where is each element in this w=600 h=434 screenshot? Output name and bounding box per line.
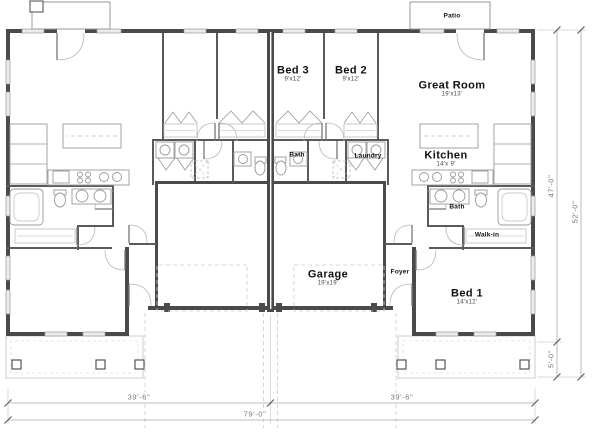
- room-label-walk-in: Walk-in: [475, 231, 499, 238]
- laundry-name: Laundry: [354, 152, 381, 159]
- room-label-laundry: Laundry: [354, 152, 381, 159]
- bed2-dims: 9'x12': [335, 77, 367, 84]
- dim-right-total: 52'-0": [571, 199, 580, 226]
- garage-name: Garage: [308, 269, 348, 281]
- hall-bath-name: Bath: [289, 151, 304, 158]
- dwelling-unit-left: [6, 29, 273, 429]
- dim-bottom-left: 39'-6": [126, 393, 153, 402]
- room-label-garage: Garage 19'x19': [308, 269, 348, 288]
- room-label-bed3: Bed 3 9'x12': [277, 65, 309, 84]
- patio-label-text: Patio: [444, 12, 461, 19]
- room-label-great-room: Great Room 19'x13': [419, 80, 486, 99]
- garage-dims: 19'x19': [308, 281, 348, 288]
- room-label-kitchen: Kitchen 14'x 9': [424, 150, 467, 169]
- kitchen-dims: 14'x 9': [424, 162, 467, 169]
- room-label-bed2: Bed 2 9'x12': [335, 65, 367, 84]
- room-label-hall-bath: Bath: [289, 151, 304, 158]
- bed3-name: Bed 3: [277, 65, 309, 77]
- shared-structure: [30, 1, 490, 312]
- dim-right-upper: 47'-0": [547, 173, 556, 200]
- bed1-dims: 14'x12': [451, 300, 483, 307]
- dim-bottom-total: 79'-0": [242, 410, 269, 419]
- dim-right-lower: 5'-0": [547, 348, 556, 370]
- foyer-name: Foyer: [391, 268, 410, 275]
- bed3-dims: 9'x12': [277, 77, 309, 84]
- bed2-name: Bed 2: [335, 65, 367, 77]
- room-label-foyer: Foyer: [391, 268, 410, 275]
- dwelling-unit-right: [268, 29, 535, 429]
- walk-in-name: Walk-in: [475, 231, 499, 238]
- patio-label: Patio: [444, 12, 461, 19]
- bed1-name: Bed 1: [451, 288, 483, 300]
- dim-bottom-right: 39'-6": [389, 393, 416, 402]
- kitchen-name: Kitchen: [424, 150, 467, 162]
- floor-plan: Patio Bed 3 9'x12' Bed 2 9'x12' Great Ro…: [0, 0, 600, 434]
- room-label-master-bath: Bath: [449, 203, 464, 210]
- master-bath-name: Bath: [449, 203, 464, 210]
- great-room-dims: 19'x13': [419, 92, 486, 99]
- room-label-bed1: Bed 1 14'x12': [451, 288, 483, 307]
- great-room-name: Great Room: [419, 80, 486, 92]
